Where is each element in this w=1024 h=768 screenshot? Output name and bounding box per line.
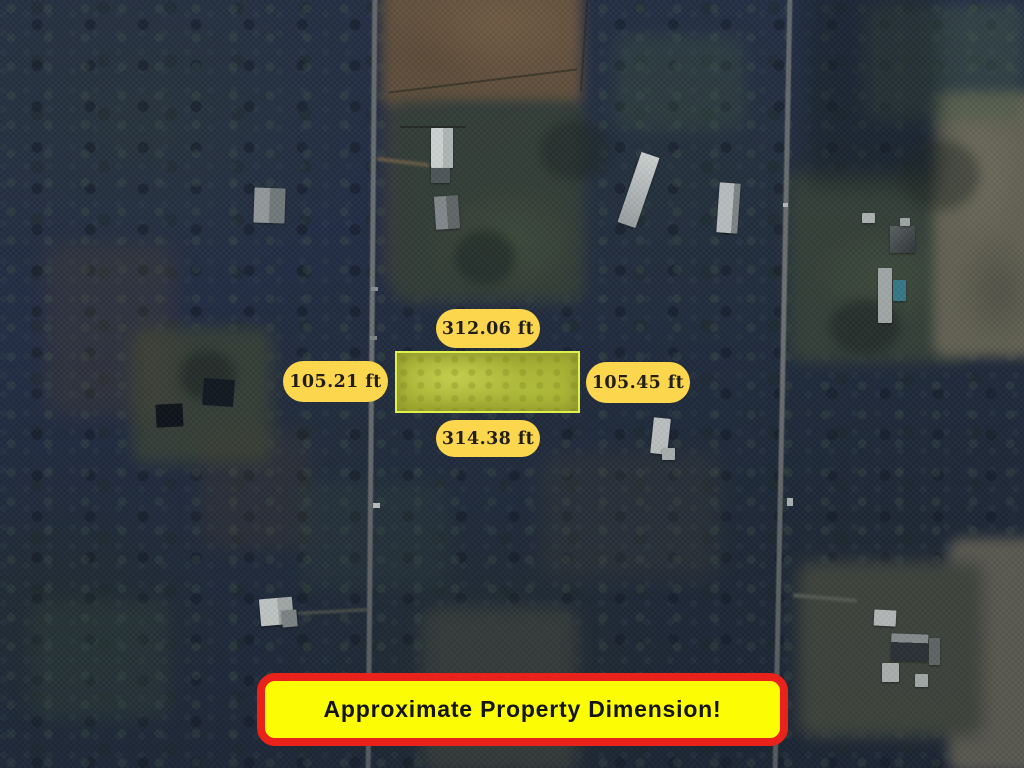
satellite-property-image: 312.06 ft 105.21 ft 105.45 ft 314.38 ft … [0, 0, 1024, 768]
dimension-label-bottom: 314.38 ft [436, 420, 540, 457]
dimension-label-right: 105.45 ft [586, 362, 690, 403]
dimension-label-top: 312.06 ft [436, 309, 540, 348]
dimension-label-left: 105.21 ft [283, 361, 388, 402]
property-boundary-highlight [395, 351, 580, 413]
caption-banner: Approximate Property Dimension! [257, 673, 788, 746]
